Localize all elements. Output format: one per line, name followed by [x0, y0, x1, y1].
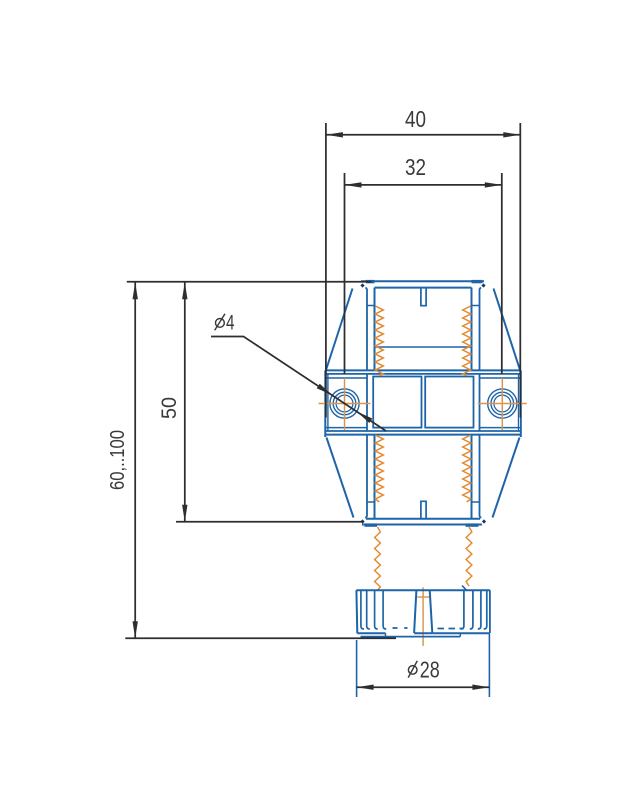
- svg-text:60,..100: 60,..100: [107, 430, 129, 490]
- svg-text:28: 28: [420, 656, 440, 682]
- svg-text:40: 40: [405, 106, 426, 132]
- svg-text:4: 4: [226, 310, 235, 334]
- svg-text:50: 50: [157, 397, 181, 419]
- svg-text:32: 32: [405, 154, 426, 180]
